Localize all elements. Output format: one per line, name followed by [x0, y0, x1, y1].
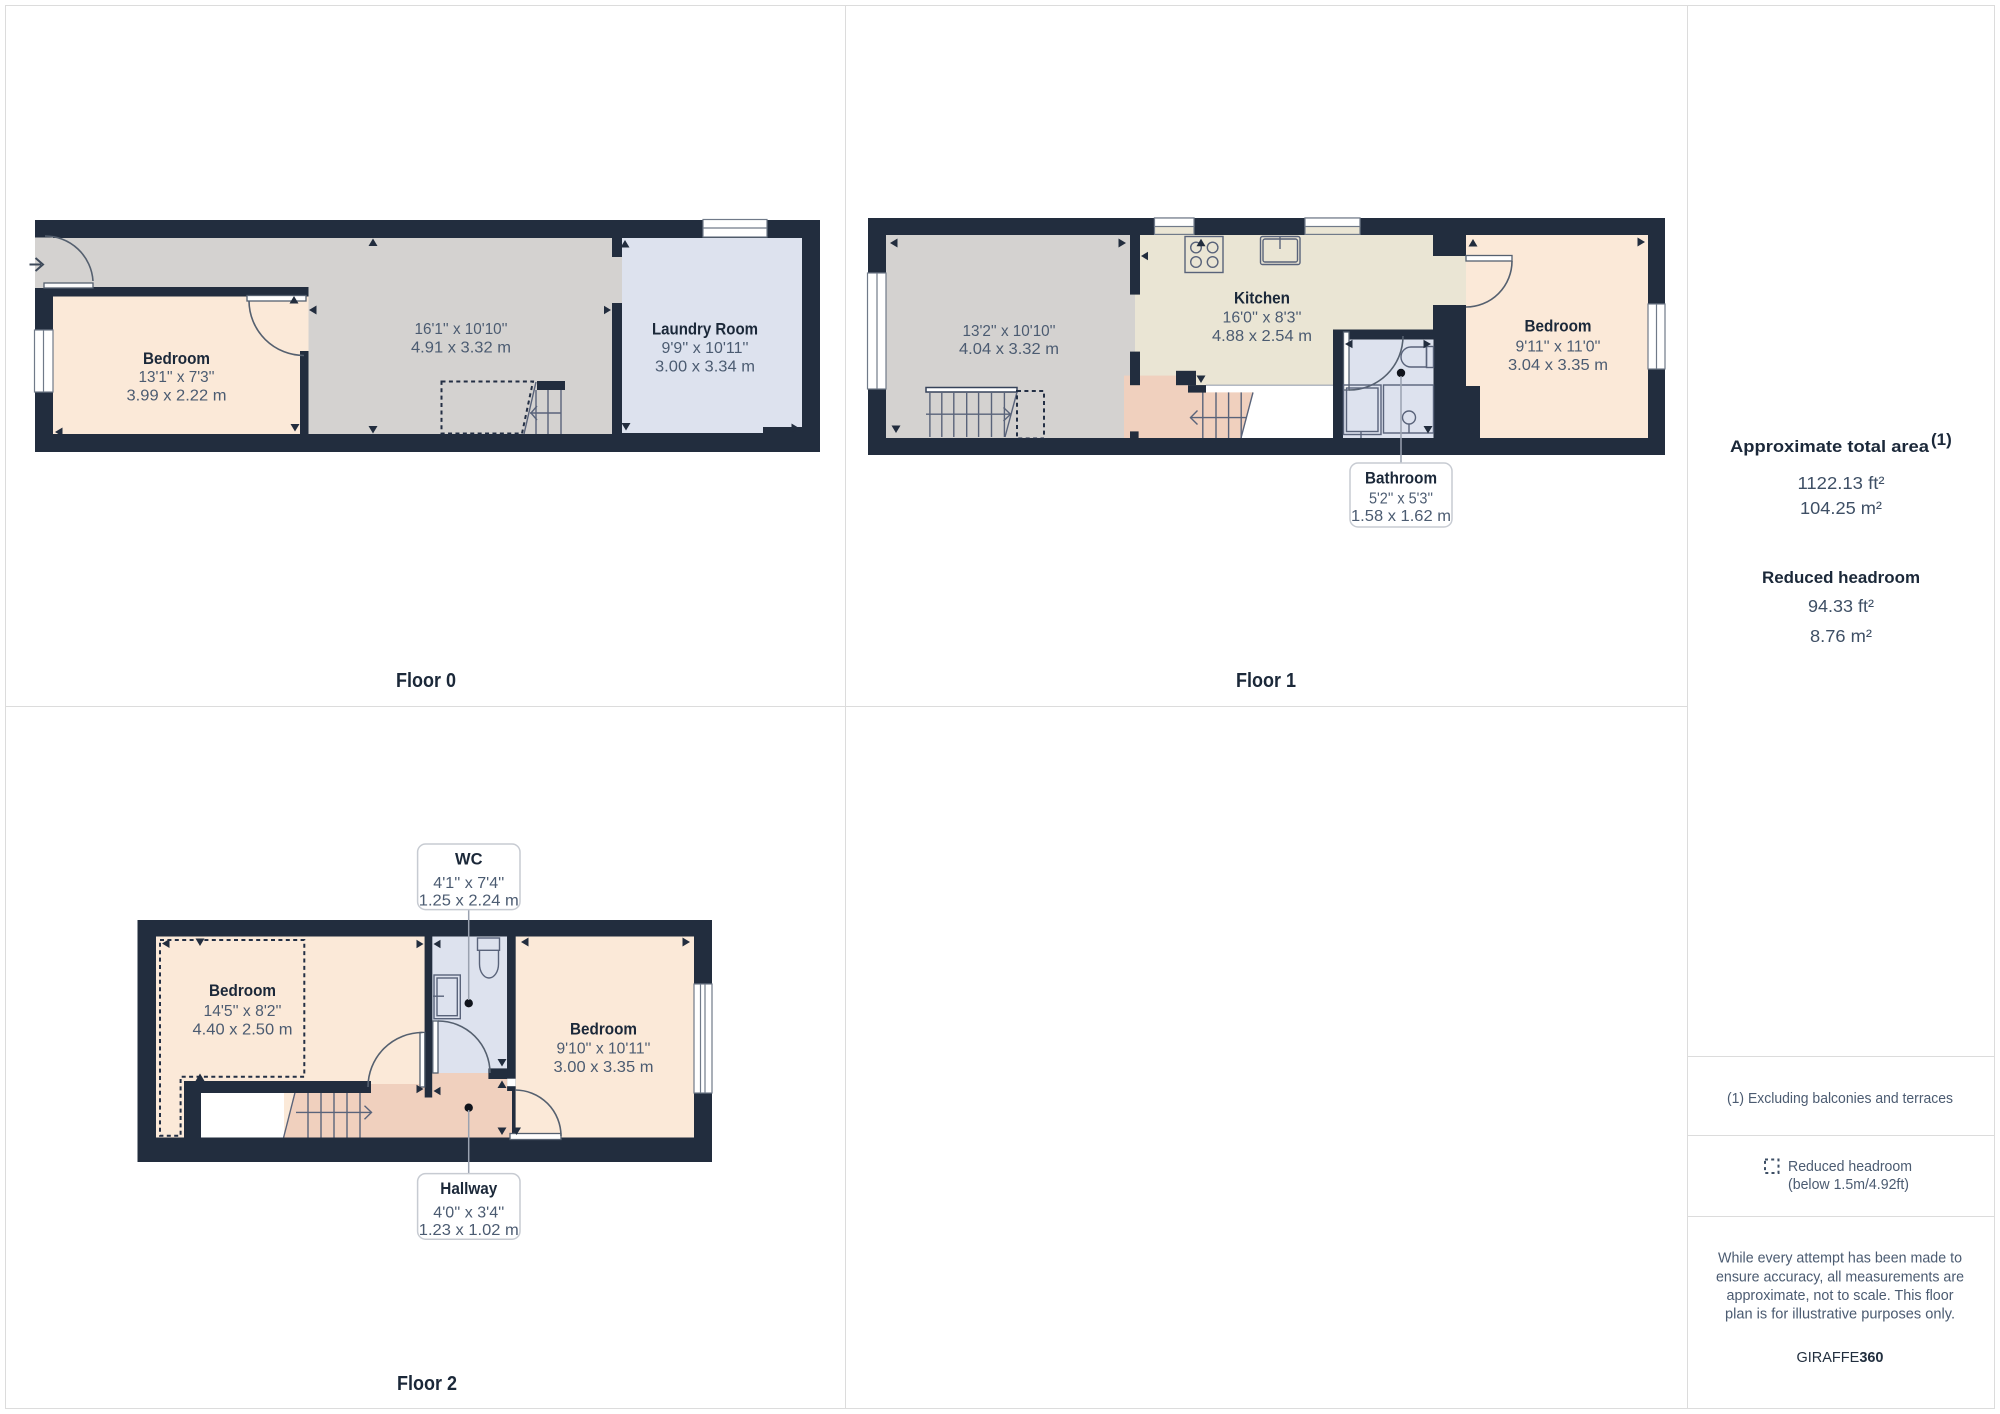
svg-text:Reduced headroom: Reduced headroom [1762, 568, 1920, 587]
svg-text:94.33 ft²: 94.33 ft² [1808, 596, 1874, 616]
svg-text:1.23 x 1.02 m: 1.23 x 1.02 m [419, 1222, 519, 1239]
svg-text:1.25 x 2.24 m: 1.25 x 2.24 m [419, 893, 519, 910]
svg-text:Kitchen: Kitchen [1234, 290, 1290, 308]
svg-text:9'9'' x 10'11'': 9'9'' x 10'11'' [662, 340, 749, 357]
svg-text:(below 1.5m/4.92ft): (below 1.5m/4.92ft) [1788, 1177, 1909, 1193]
svg-text:WC: WC [455, 851, 483, 869]
svg-text:13'2'' x 10'10'': 13'2'' x 10'10'' [963, 323, 1056, 340]
svg-text:3.99 x 2.22 m: 3.99 x 2.22 m [127, 388, 227, 405]
svg-text:Floor 0: Floor 0 [396, 670, 456, 692]
svg-text:8.76 m²: 8.76 m² [1810, 626, 1872, 646]
svg-text:4.88 x 2.54 m: 4.88 x 2.54 m [1212, 328, 1312, 345]
svg-text:Laundry Room: Laundry Room [652, 321, 758, 339]
svg-text:104.25 m²: 104.25 m² [1800, 498, 1882, 518]
svg-text:9'10'' x 10'11'': 9'10'' x 10'11'' [557, 1041, 651, 1058]
svg-text:plan is for illustrative purpo: plan is for illustrative purposes only. [1725, 1307, 1955, 1323]
svg-text:Approximate total area: Approximate total area [1730, 437, 1930, 456]
svg-text:3.00 x 3.34 m: 3.00 x 3.34 m [655, 359, 755, 376]
svg-text:1122.13 ft²: 1122.13 ft² [1798, 473, 1885, 493]
svg-text:3.04 x 3.35 m: 3.04 x 3.35 m [1508, 357, 1608, 374]
svg-text:16'1'' x 10'10'': 16'1'' x 10'10'' [415, 321, 508, 338]
svg-text:Floor 1: Floor 1 [1236, 670, 1296, 692]
svg-text:Floor 2: Floor 2 [397, 1373, 457, 1395]
svg-text:9'11'' x 11'0'': 9'11'' x 11'0'' [1516, 339, 1601, 356]
svg-text:13'1'' x 7'3'': 13'1'' x 7'3'' [139, 369, 215, 386]
svg-text:5'2'' x 5'3'': 5'2'' x 5'3'' [1369, 491, 1433, 508]
svg-text:3.00 x 3.35 m: 3.00 x 3.35 m [554, 1059, 654, 1076]
svg-text:4.91 x 3.32 m: 4.91 x 3.32 m [411, 340, 511, 357]
svg-text:Reduced headroom: Reduced headroom [1788, 1159, 1912, 1175]
svg-text:approximate, not to scale. Thi: approximate, not to scale. This floor [1727, 1288, 1954, 1304]
svg-text:Bedroom: Bedroom [570, 1021, 637, 1039]
svg-text:Bedroom: Bedroom [1525, 318, 1592, 336]
svg-text:4'1'' x 7'4'': 4'1'' x 7'4'' [433, 875, 504, 892]
svg-text:1.58 x 1.62 m: 1.58 x 1.62 m [1351, 508, 1451, 525]
svg-text:While every attempt has been m: While every attempt has been made to [1718, 1251, 1962, 1267]
svg-text:(1) Excluding balconies and te: (1) Excluding balconies and terraces [1727, 1091, 1953, 1107]
svg-text:14'5'' x 8'2'': 14'5'' x 8'2'' [204, 1003, 282, 1020]
svg-text:16'0'' x 8'3'': 16'0'' x 8'3'' [1223, 310, 1302, 327]
svg-text:4.04 x 3.32 m: 4.04 x 3.32 m [959, 341, 1059, 358]
svg-text:Bathroom: Bathroom [1365, 470, 1437, 488]
svg-text:ensure accuracy, all measureme: ensure accuracy, all measurements are [1716, 1270, 1964, 1286]
svg-text:Bedroom: Bedroom [143, 350, 210, 368]
svg-text:Hallway: Hallway [440, 1180, 498, 1198]
svg-text:Bedroom: Bedroom [209, 982, 276, 1000]
svg-text:(1): (1) [1931, 430, 1952, 449]
svg-text:4.40 x 2.50 m: 4.40 x 2.50 m [193, 1022, 293, 1039]
svg-text:GIRAFFE360: GIRAFFE360 [1797, 1349, 1884, 1366]
svg-text:4'0'' x 3'4'': 4'0'' x 3'4'' [433, 1205, 504, 1222]
